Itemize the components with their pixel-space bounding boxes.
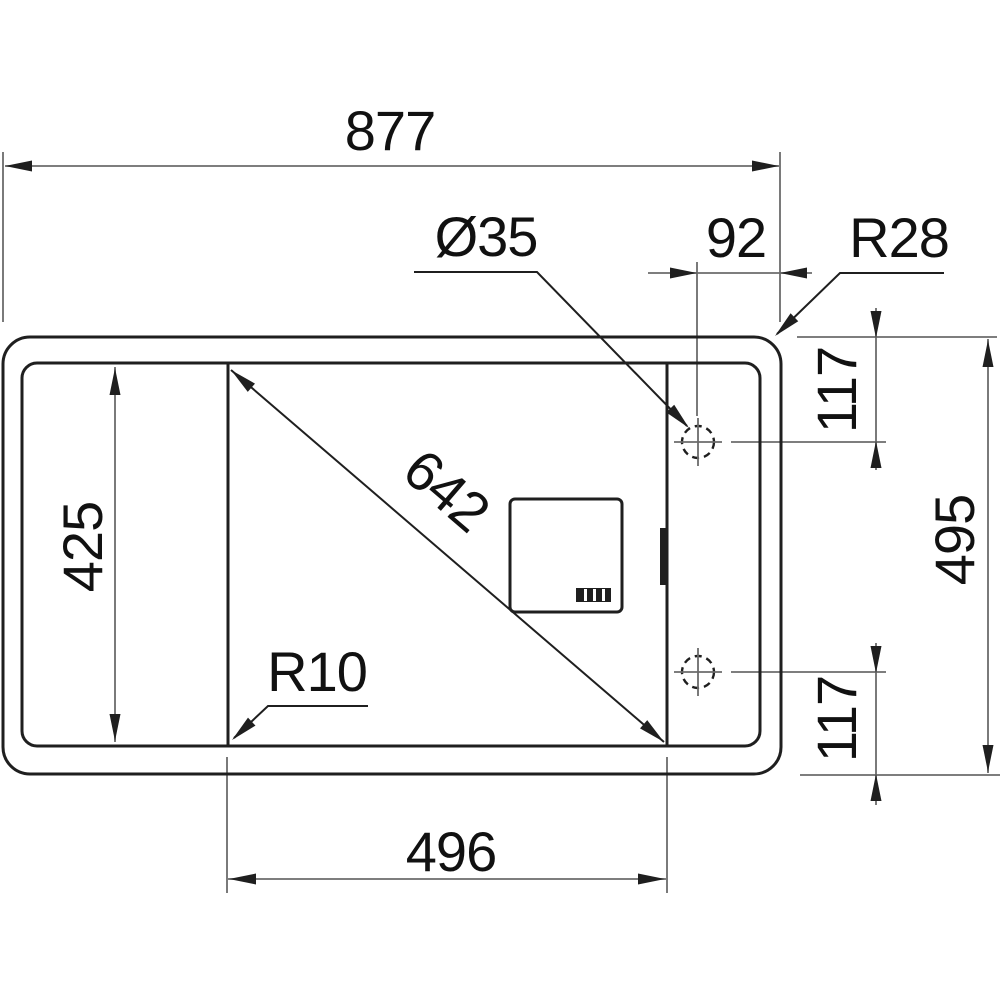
tap-holes xyxy=(674,418,722,696)
sink-inner-rim xyxy=(22,363,760,746)
tap-hole-bottom xyxy=(674,648,722,696)
strainer-grate xyxy=(576,588,611,602)
dim-label-tap-hole-top-offset: 117 xyxy=(805,347,868,433)
sink-dimension-drawing: 877 Ø35 92 R28 425 642 R10 496 117 495 1… xyxy=(0,0,1000,1000)
leader-tap-hole-diameter xyxy=(414,272,687,426)
dim-label-tap-hole-edge-offset: 92 xyxy=(706,206,766,269)
dim-label-overall-depth: 495 xyxy=(923,495,986,585)
arrowheads xyxy=(5,161,994,885)
dimension-labels: 877 Ø35 92 R28 425 642 R10 496 117 495 1… xyxy=(51,99,986,883)
technical-drawing-canvas: 877 Ø35 92 R28 425 642 R10 496 117 495 1… xyxy=(0,0,1000,1000)
dim-label-tap-hole-bottom-offset: 117 xyxy=(805,676,868,762)
dim-label-bowl-width: 496 xyxy=(406,820,496,883)
leader-outer-corner-radius xyxy=(777,273,944,334)
dim-label-bowl-height: 425 xyxy=(51,502,114,592)
dim-label-bowl-corner-radius: R10 xyxy=(267,640,367,703)
leader-bowl-corner-radius xyxy=(234,706,368,738)
dim-label-bowl-diagonal: 642 xyxy=(392,437,502,544)
dim-label-tap-hole-diameter: Ø35 xyxy=(435,205,538,268)
dim-label-outer-corner-radius: R28 xyxy=(849,206,949,269)
tap-hole-top xyxy=(674,418,722,466)
dim-label-overall-width: 877 xyxy=(345,99,435,162)
overflow-slot xyxy=(660,528,668,585)
dimension-lines xyxy=(5,166,988,879)
